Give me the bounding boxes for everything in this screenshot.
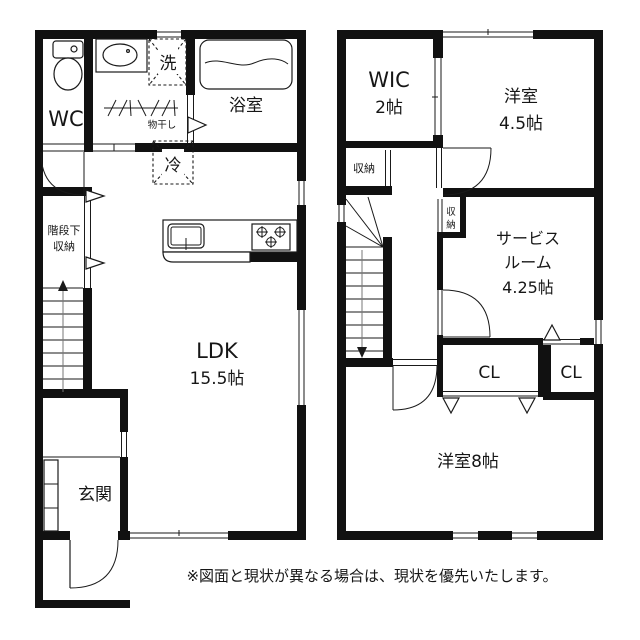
- floor-plan-1f: 洗 物干し 冷: [35, 30, 306, 608]
- entrance-area: 玄関: [43, 457, 120, 531]
- window-top-sliding-2f: [443, 29, 533, 39]
- storage-door-arrow-bottom-icon: [86, 257, 104, 269]
- window-top: [157, 30, 181, 39]
- understair-storage: 階段下 収納: [48, 190, 105, 269]
- window-right-tall: [297, 310, 306, 405]
- closet-west-door: [384, 150, 392, 186]
- understair-storage-door: [83, 196, 92, 288]
- window-right-small: [297, 181, 306, 205]
- closet-side-label: CL: [560, 363, 582, 383]
- bathtub-icon: [200, 40, 292, 89]
- room45-label-line1: 洋室: [504, 87, 538, 107]
- window-bottom-sliding: [130, 530, 228, 540]
- closet-hall-label-char2: 納: [446, 219, 456, 231]
- ldk-label-line1: LDK: [196, 339, 239, 363]
- floor-plan-2f: WIC 2帖 洋室 4.5帖 収納 収 納 サービス ルーム 4.25帖 CL …: [337, 29, 603, 540]
- service-room-door-swing: [443, 290, 490, 337]
- entrance-hall-opening: [120, 432, 128, 457]
- room8-label: 洋室8帖: [437, 452, 499, 472]
- wic-label-line2: 2帖: [375, 98, 403, 118]
- closet-side-door-arrow-icon: [544, 325, 560, 340]
- stairs-down-arrow-icon: [357, 250, 367, 358]
- service-room-label-line1: サービス: [496, 229, 560, 248]
- closet-west-label: 収納: [353, 162, 375, 175]
- wic-label-line1: WIC: [368, 68, 410, 92]
- storage-door-arrow-top-icon: [86, 190, 104, 202]
- room8-door-swing: [393, 365, 437, 410]
- wc-door-opening: [43, 143, 84, 152]
- floorplan-drawing: 洗 物干し 冷: [0, 0, 640, 640]
- wic-sliding-door: [432, 58, 443, 135]
- entrance-label: 玄関: [78, 485, 112, 505]
- laundry-machine-box: 洗: [149, 39, 186, 85]
- bathroom-label: 浴室: [229, 96, 263, 116]
- room45-label-line2: 4.5帖: [499, 114, 543, 134]
- closet-main-folding-door: [443, 390, 538, 397]
- understair-label-line1: 階段下: [48, 223, 81, 237]
- understair-label-line2: 収納: [53, 240, 75, 253]
- stairs-2f: [346, 197, 383, 358]
- 1f-windows: [130, 30, 306, 540]
- closet-hall-label-char1: 収: [446, 206, 456, 218]
- entrance-door-swing: [70, 540, 118, 588]
- stove-icon: [252, 224, 290, 250]
- window-right-2f: [594, 320, 603, 344]
- room45-door-swing: [443, 148, 491, 195]
- floorplan-canvas: 洗 物干し 冷: [0, 0, 640, 640]
- washroom-sliding-door: [93, 143, 135, 152]
- bath-folding-door-icon: [188, 117, 206, 133]
- window-bottom-right-2f: [512, 531, 537, 540]
- closet-main-door-arrow-right-icon: [519, 398, 535, 413]
- stairs-1f: [43, 280, 83, 392]
- ldk-label-line2: 15.5帖: [190, 369, 245, 389]
- closet-main-label: CL: [478, 363, 500, 383]
- window-bottom-left-2f: [453, 531, 478, 540]
- laundry-label: 洗: [160, 54, 177, 74]
- closet-main-door-arrow-left-icon: [443, 398, 459, 413]
- wc-label: WC: [48, 107, 83, 131]
- fridge-label: 冷: [165, 156, 182, 176]
- service-room-door-opening: [437, 290, 443, 335]
- window-left-2f: [337, 205, 346, 222]
- service-room-label-line3: 4.25帖: [502, 278, 554, 297]
- closet-hall-opening: [437, 199, 443, 232]
- drying-rack-label: 物干し: [148, 119, 177, 131]
- toilet-icon: [53, 41, 83, 90]
- room8-door-opening: [393, 358, 437, 367]
- stairs-up-arrow-icon: [58, 280, 68, 392]
- disclaimer-text: ※図面と現状が異なる場合は、現状を優先いたします。: [186, 567, 557, 585]
- sink-vanity-icon: [96, 39, 147, 72]
- service-room-label-line2: ルーム: [504, 253, 552, 272]
- room45-door-opening: [435, 148, 443, 188]
- drying-rack-icon: 物干し: [104, 100, 178, 131]
- shoe-cabinet-icon: [44, 460, 58, 531]
